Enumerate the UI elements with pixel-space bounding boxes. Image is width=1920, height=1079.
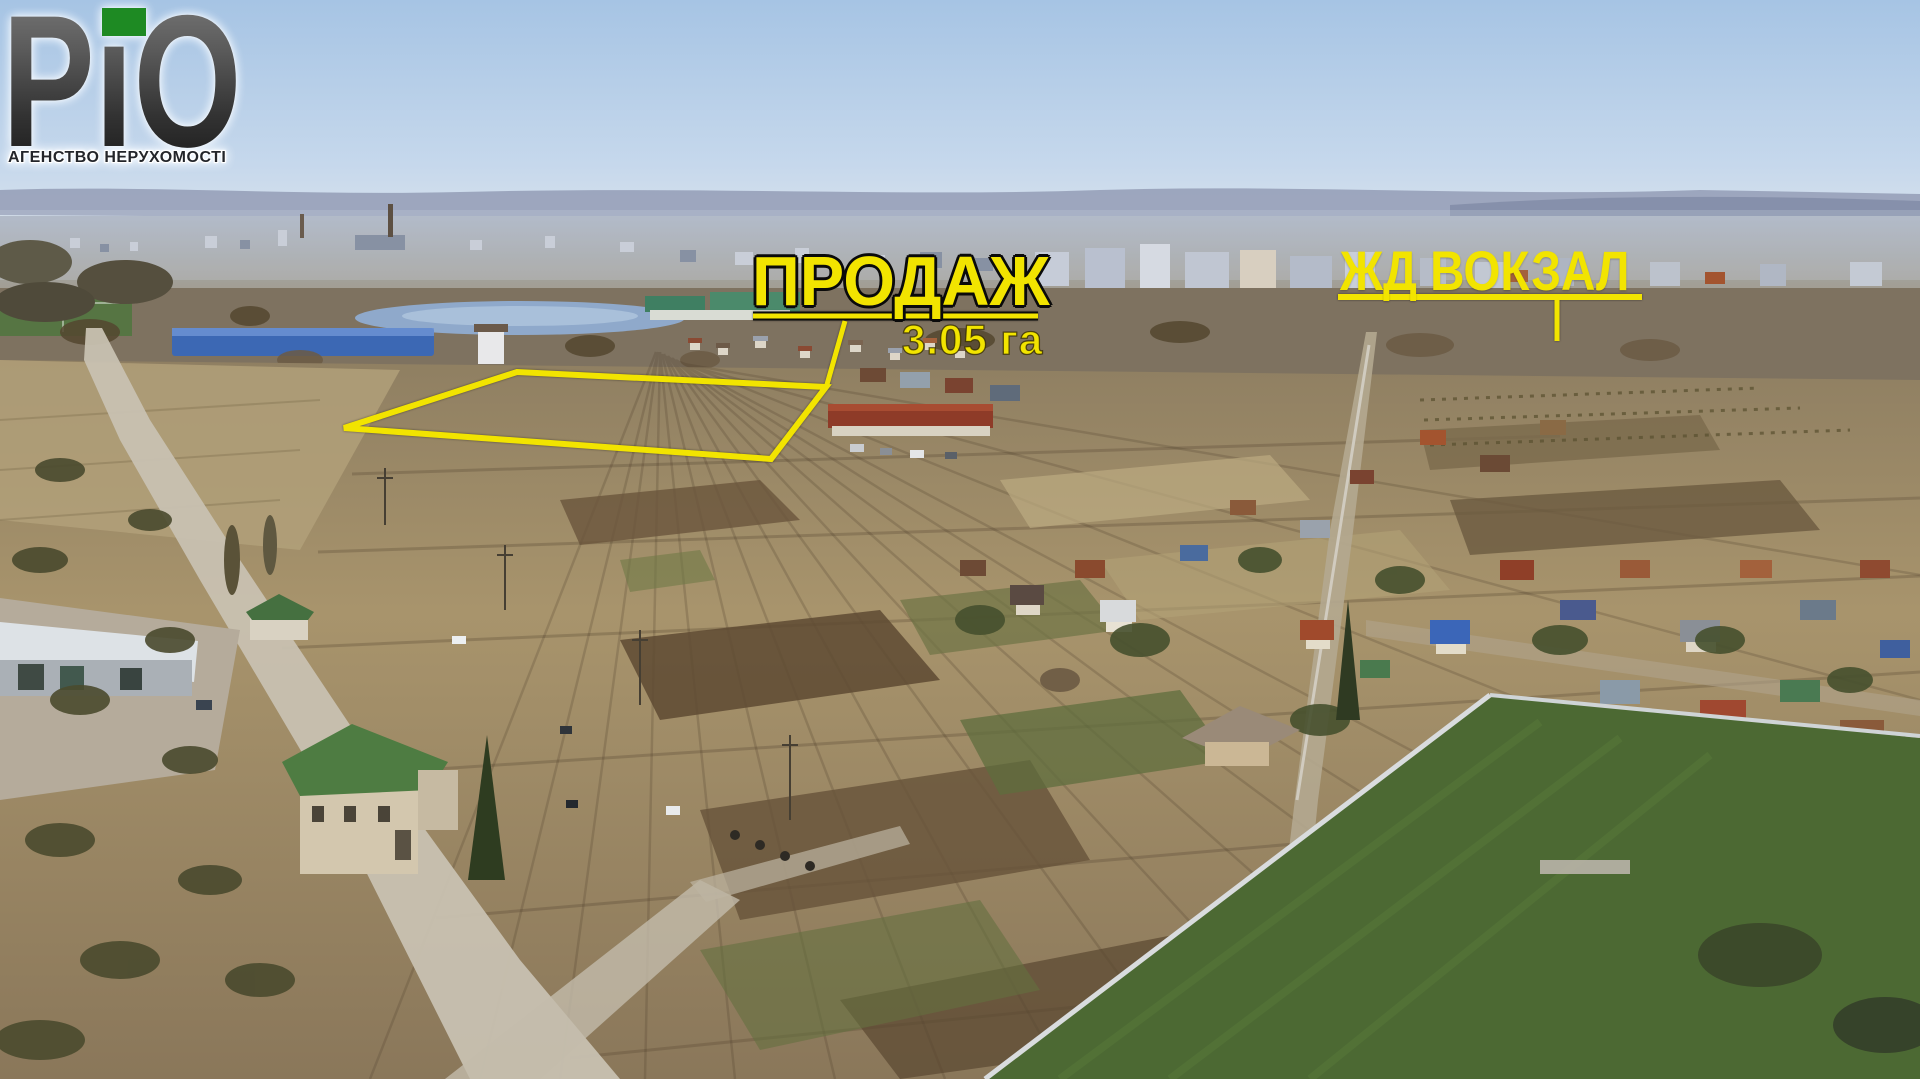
agency-logo-tagline: АГЕНСТВО НЕРУХОМОСТІ	[8, 150, 226, 166]
sale-label: ПРОДАЖ	[752, 246, 1050, 316]
station-label: ЖД ВОКЗАЛ	[1340, 243, 1629, 299]
plot-outline	[344, 372, 826, 459]
agency-logo: РіО АГЕНСТВО НЕРУХОМОСТІ	[0, 0, 300, 180]
sale-area-label: 3.05 га	[902, 319, 1043, 361]
sale-callout-line	[826, 321, 845, 388]
real-estate-aerial-ad: ПРОДАЖ 3.05 га ЖД ВОКЗАЛ РіО АГЕНСТВО НЕ…	[0, 0, 1920, 1079]
logo-accent-square	[102, 8, 146, 36]
